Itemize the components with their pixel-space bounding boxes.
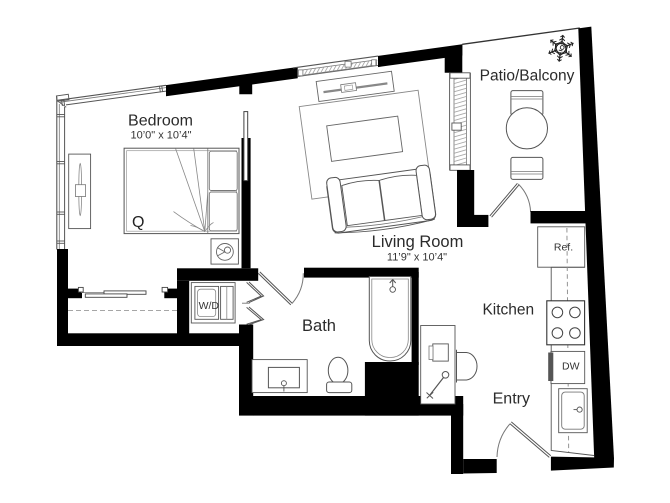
svg-text:Patio/Balcony: Patio/Balcony (480, 68, 575, 85)
svg-text:Ref.: Ref. (554, 242, 573, 254)
svg-text:DW: DW (562, 361, 580, 373)
svg-text:Living Room: Living Room (372, 233, 464, 251)
svg-text:11’9" x 10’4": 11’9" x 10’4" (387, 252, 447, 264)
svg-text:Bedroom: Bedroom (128, 113, 193, 130)
svg-text:Entry: Entry (493, 391, 530, 408)
svg-text:10’0" x 10’4": 10’0" x 10’4" (130, 130, 191, 142)
svg-text:Q: Q (132, 214, 144, 231)
svg-text:Bath: Bath (302, 317, 336, 335)
svg-text:W/D: W/D (199, 300, 220, 312)
svg-text:Kitchen: Kitchen (482, 302, 534, 319)
